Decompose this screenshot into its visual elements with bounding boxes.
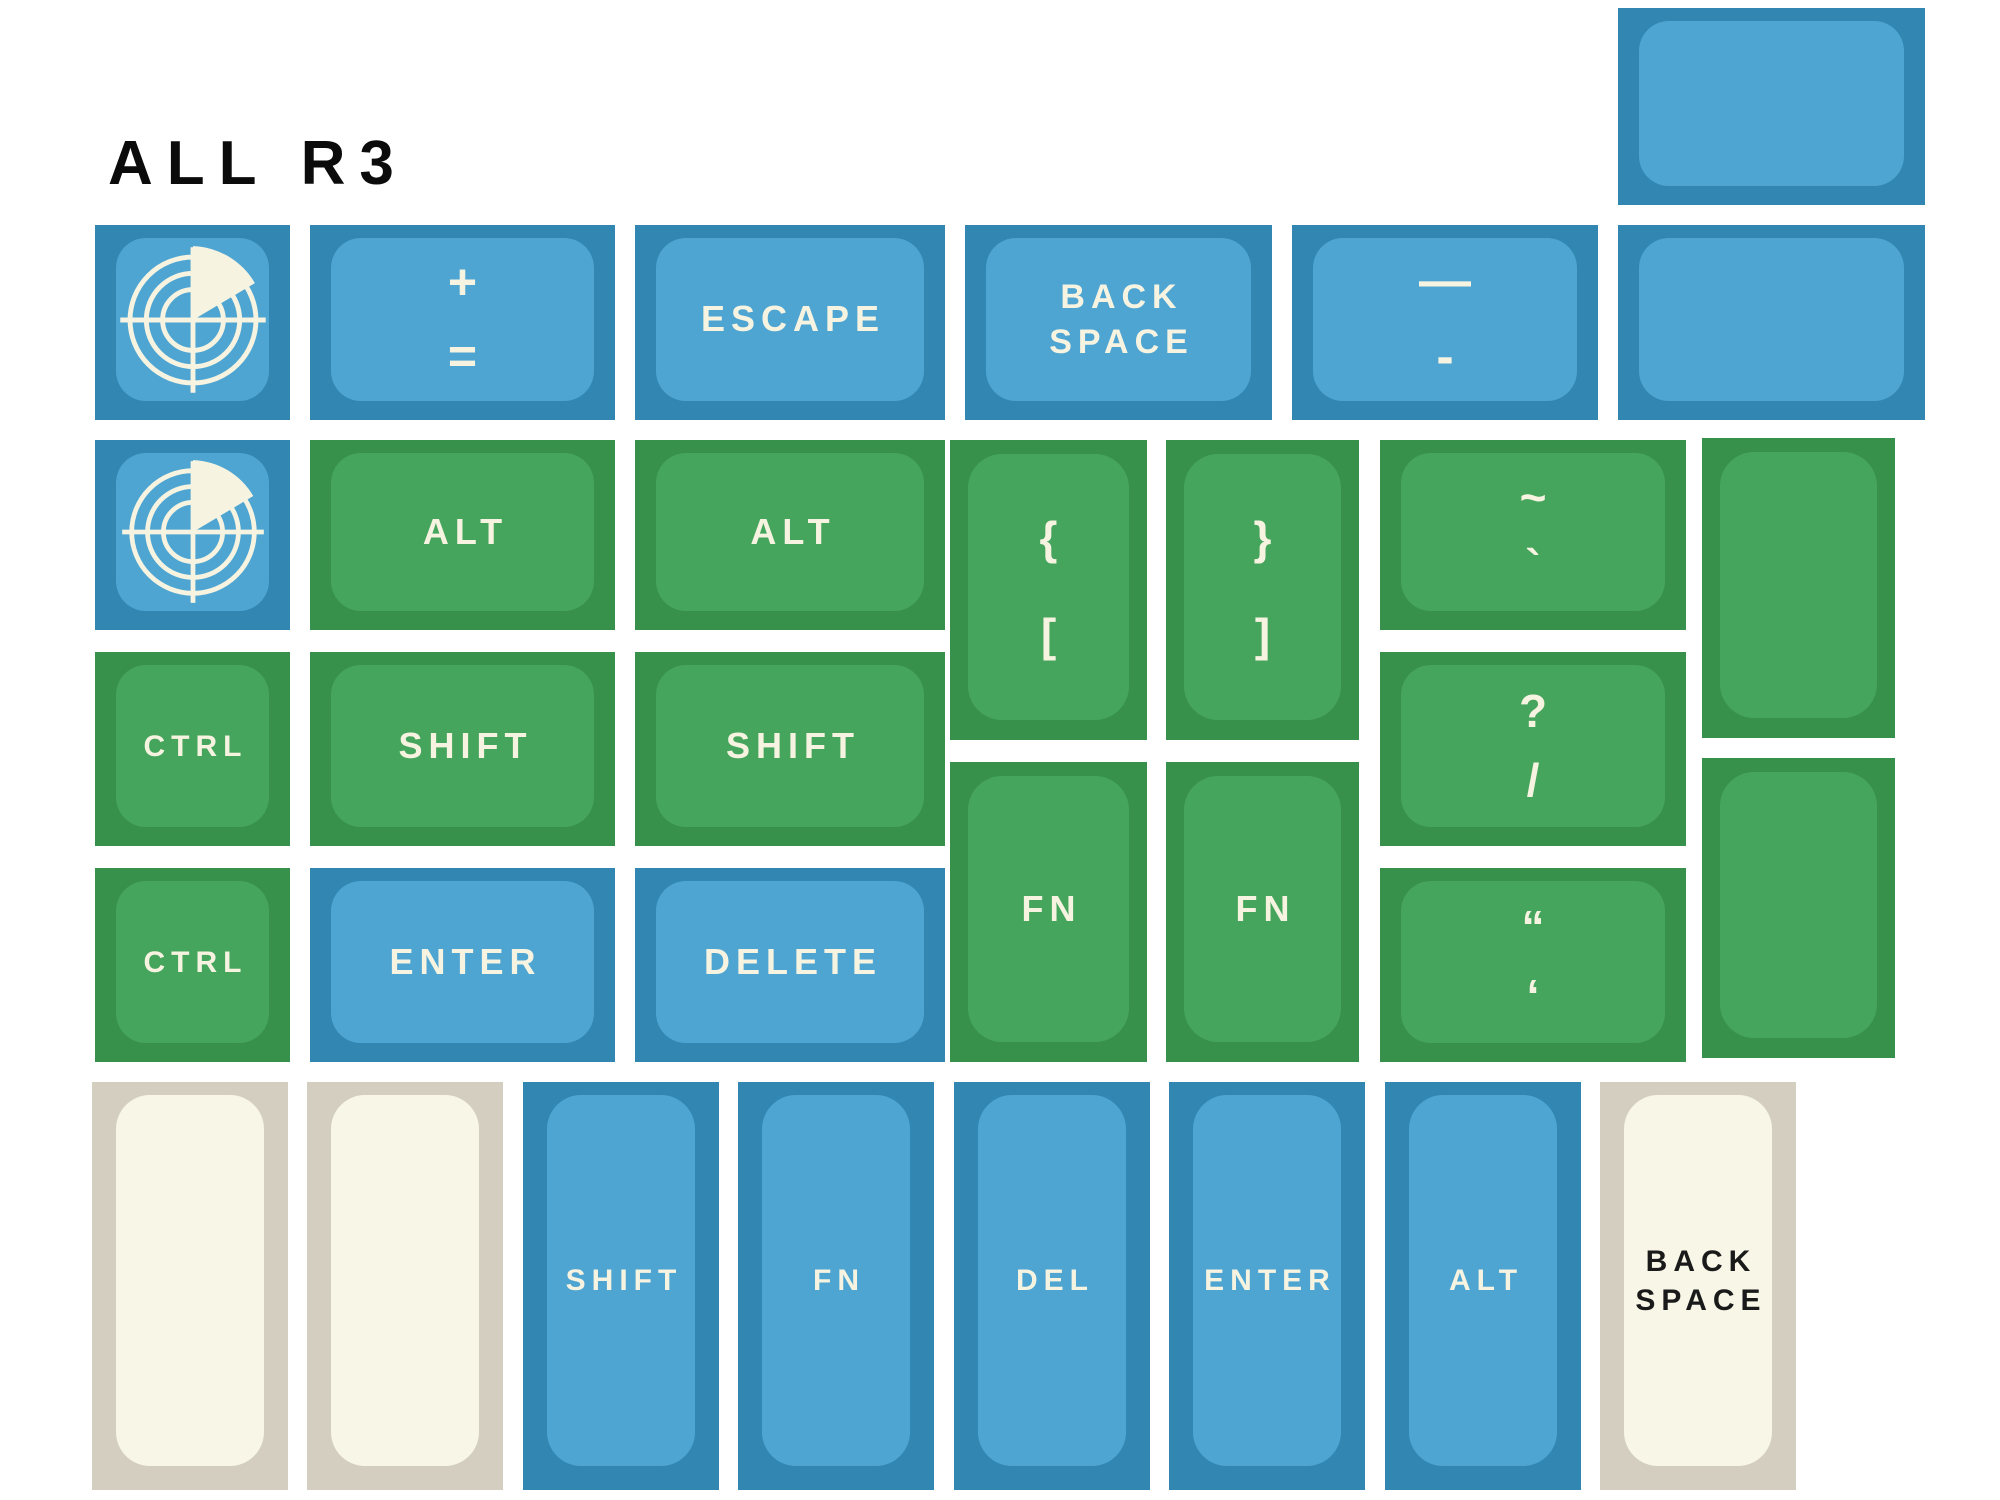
key-legend: SHIFT (720, 723, 860, 770)
page-title: ALL R3 (108, 128, 408, 199)
key-legend-line: BACK (1054, 275, 1182, 319)
del-key-bottom[interactable]: DEL (954, 1082, 1150, 1490)
fn-key-right[interactable]: FN (1166, 762, 1359, 1062)
key-legend-line: ~ (1520, 471, 1547, 524)
keycap-surface: ENTER (331, 881, 594, 1043)
keycap-surface (1639, 21, 1904, 186)
blank-key-green-upper[interactable] (1702, 438, 1895, 738)
tilde-grave-key[interactable]: ~` (1380, 440, 1686, 630)
key-legend: SHIFT (393, 723, 533, 770)
keycap-surface: “‘ (1401, 881, 1665, 1043)
radar-key-row2[interactable] (95, 440, 290, 630)
backspace-key-bottom[interactable]: BACKSPACE (1600, 1082, 1796, 1490)
key-legend-line: ALT (1443, 1261, 1523, 1300)
keycap-surface: FN (1184, 776, 1341, 1042)
key-legend-line: SHIFT (393, 723, 533, 770)
key-legend: FN (807, 1261, 865, 1300)
key-legend: FN (1016, 886, 1082, 933)
blank-key-top-right[interactable] (1618, 8, 1925, 205)
radar-key-row1[interactable] (95, 225, 290, 420)
keycap-surface: FN (762, 1095, 910, 1466)
key-legend-line: DELETE (698, 939, 882, 986)
ctrl-key-row3[interactable]: CTRL (95, 652, 290, 846)
key-legend: ESCAPE (695, 296, 885, 343)
keycap-surface: SHIFT (547, 1095, 695, 1466)
keycap-surface: FN (968, 776, 1129, 1042)
key-legend: {[ (1040, 512, 1058, 662)
key-legend: DELETE (698, 939, 882, 986)
key-legend-line: FN (1016, 886, 1082, 933)
keycap-surface: += (331, 238, 594, 401)
key-legend-line: “ (1522, 901, 1545, 954)
key-legend-line: } (1254, 512, 1272, 565)
key-legend-line: CTRL (138, 727, 248, 766)
key-legend-line: ? (1519, 685, 1547, 738)
key-legend-line: = (448, 328, 477, 386)
key-legend: “‘ (1522, 901, 1545, 1023)
fn-key-bottom[interactable]: FN (738, 1082, 934, 1490)
fn-key-left[interactable]: FN (950, 762, 1147, 1062)
underscore-hyphen-key[interactable]: —- (1292, 225, 1598, 420)
keycap-surface: DELETE (656, 881, 924, 1043)
keycap-surface: ALT (1409, 1095, 1557, 1466)
key-legend: CTRL (138, 727, 248, 766)
key-legend: BACKSPACE (1043, 275, 1194, 363)
keycap-surface: ALT (656, 453, 924, 611)
plus-equals-key[interactable]: += (310, 225, 615, 420)
keycap-surface (116, 453, 269, 611)
key-legend: ALT (744, 509, 835, 556)
alt-key-bottom[interactable]: ALT (1385, 1082, 1581, 1490)
brace-bracket-right-key[interactable]: }] (1166, 440, 1359, 740)
brace-bracket-left-key[interactable]: {[ (950, 440, 1147, 740)
keycap-surface: DEL (978, 1095, 1126, 1466)
key-legend-line: ‘ (1527, 970, 1540, 1023)
keycap-surface: ESCAPE (656, 238, 924, 401)
keycap-surface (1720, 452, 1877, 718)
keycap-surface: ?/ (1401, 665, 1665, 827)
keycap-surface: —- (1313, 238, 1577, 401)
key-legend: FN (1230, 886, 1296, 933)
key-legend-line: - (1436, 328, 1453, 388)
key-legend-line: + (448, 254, 477, 312)
key-legend-line: ENTER (383, 939, 541, 986)
key-legend: ~` (1520, 471, 1547, 593)
shift-key-bottom[interactable]: SHIFT (523, 1082, 719, 1490)
alt-key-left[interactable]: ALT (310, 440, 615, 630)
key-legend: —- (1419, 252, 1471, 388)
blank-key-cream-1[interactable] (92, 1082, 288, 1490)
keycap-surface: BACKSPACE (986, 238, 1251, 401)
key-legend-line: FN (1230, 886, 1296, 933)
key-legend-line: SPACE (1043, 320, 1194, 364)
keycap-surface: ~` (1401, 453, 1665, 611)
key-legend-line: ESCAPE (695, 296, 885, 343)
keycap-surface: SHIFT (331, 665, 594, 827)
delete-key[interactable]: DELETE (635, 868, 945, 1062)
key-legend: ?/ (1519, 685, 1547, 807)
double-single-quote-key[interactable]: “‘ (1380, 868, 1686, 1062)
enter-key-bottom[interactable]: ENTER (1169, 1082, 1365, 1490)
key-legend: ENTER (383, 939, 541, 986)
key-legend: }] (1254, 512, 1272, 662)
blank-key-green-lower[interactable] (1702, 758, 1895, 1058)
key-legend-line: { (1040, 512, 1058, 565)
key-legend-line: SHIFT (560, 1261, 683, 1300)
key-legend-line: SHIFT (720, 723, 860, 770)
key-legend-line: FN (807, 1261, 865, 1300)
keycap-surface: ALT (331, 453, 594, 611)
keycap-surface: BACKSPACE (1624, 1095, 1772, 1466)
radar-icon (119, 458, 267, 606)
key-legend-line: CTRL (138, 943, 248, 982)
key-legend: ALT (417, 509, 508, 556)
key-legend: BACKSPACE (1629, 1242, 1766, 1320)
keycap-surface: SHIFT (656, 665, 924, 827)
keycap-layout-sheet: ALL R3 +=ESCAPEBACKSPACE—-ALTALT{[}]~`CT… (0, 0, 2000, 1500)
shift-key-right[interactable]: SHIFT (635, 652, 945, 846)
key-legend-line: — (1419, 252, 1471, 312)
blank-key-row1[interactable] (1618, 225, 1925, 420)
key-legend-line: [ (1041, 609, 1056, 662)
key-legend: ALT (1443, 1261, 1523, 1300)
alt-key-right[interactable]: ALT (635, 440, 945, 630)
key-legend: SHIFT (560, 1261, 683, 1300)
key-legend: += (448, 254, 477, 385)
keycap-surface (116, 1095, 264, 1466)
shift-key-left[interactable]: SHIFT (310, 652, 615, 846)
key-legend-line: / (1527, 754, 1540, 807)
ctrl-key-row4[interactable]: CTRL (95, 868, 290, 1062)
key-legend-line: ALT (744, 509, 835, 556)
key-legend-line: DEL (1010, 1261, 1094, 1300)
backspace-key-row1[interactable]: BACKSPACE (965, 225, 1272, 420)
key-legend: CTRL (138, 943, 248, 982)
key-legend-line: ENTER (1198, 1261, 1336, 1300)
question-slash-key[interactable]: ?/ (1380, 652, 1686, 846)
keycap-surface (331, 1095, 479, 1466)
enter-key-row4[interactable]: ENTER (310, 868, 615, 1062)
key-legend-line: ALT (417, 509, 508, 556)
keycap-surface: ENTER (1193, 1095, 1341, 1466)
keycap-surface: }] (1184, 454, 1341, 720)
radar-icon (117, 244, 269, 396)
keycap-surface (1720, 772, 1877, 1038)
keycap-surface: CTRL (116, 665, 269, 827)
escape-key[interactable]: ESCAPE (635, 225, 945, 420)
blank-key-cream-2[interactable] (307, 1082, 503, 1490)
keycap-surface (116, 238, 269, 401)
key-legend-line: ` (1525, 540, 1540, 593)
key-legend: ENTER (1198, 1261, 1336, 1300)
key-legend-line: BACK (1640, 1242, 1757, 1281)
keycap-surface: {[ (968, 454, 1129, 720)
keycap-surface: CTRL (116, 881, 269, 1043)
key-legend-line: SPACE (1629, 1281, 1766, 1320)
keycap-surface (1639, 238, 1904, 401)
key-legend: DEL (1010, 1261, 1094, 1300)
key-legend-line: ] (1255, 609, 1270, 662)
